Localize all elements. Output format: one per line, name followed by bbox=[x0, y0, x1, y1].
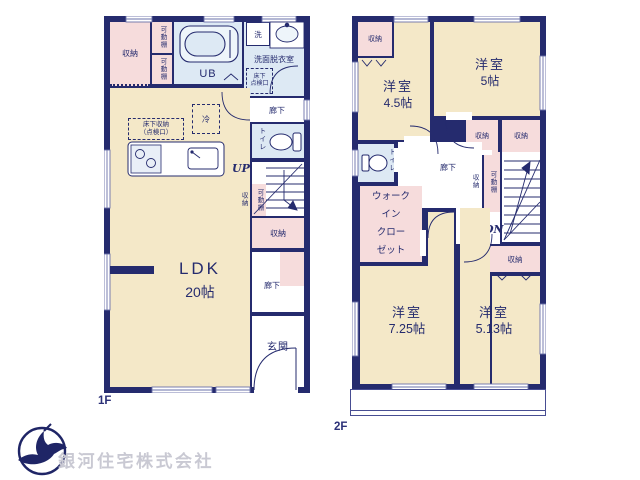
floor-hatch-box: 床下 点検口 bbox=[246, 68, 273, 94]
underfloor-line2: （点検口） bbox=[140, 129, 173, 137]
stairwell-2f bbox=[502, 152, 540, 242]
ldk-label: LDK 20帖 bbox=[150, 260, 250, 300]
toilet-label-1f: トイレ bbox=[258, 127, 266, 151]
room-entrance: 玄関 bbox=[252, 316, 304, 387]
stair-shelf-1f: 可動棚 bbox=[252, 184, 266, 216]
room-45-name: 洋室 bbox=[366, 80, 430, 94]
room-5-size: 5帖 bbox=[458, 75, 522, 88]
room-725-name: 洋室 bbox=[372, 306, 442, 320]
room-5-label: 洋室 5帖 bbox=[458, 58, 522, 88]
room-walk-in-closet: ウォーク イン クロー ゼット bbox=[360, 186, 422, 262]
room-hall-upper-1f: 廊下 bbox=[250, 98, 304, 122]
room-513-label: 洋室 5.13帖 bbox=[462, 306, 526, 337]
room-shelf-bottom-1f: 可動棚 bbox=[152, 55, 172, 84]
wic-line3: クロー bbox=[377, 224, 406, 242]
room-closet-1f: 収納 bbox=[110, 22, 150, 86]
shoe-closet-1f bbox=[280, 252, 304, 286]
room-45-size: 4.5帖 bbox=[366, 97, 430, 110]
under-stair-storage-2f: 収納 bbox=[490, 246, 540, 272]
room-725-entry bbox=[428, 212, 454, 270]
room-washroom: 洗 洗面脱衣室 床下 点検口 bbox=[244, 22, 304, 96]
floor-hatch-line2: 点検口 bbox=[250, 81, 268, 89]
room-5-name: 洋室 bbox=[458, 58, 522, 72]
closet-b-2f: 収納 bbox=[502, 120, 540, 152]
balcony-rail-line bbox=[351, 410, 545, 411]
wic-line4: ゼット bbox=[377, 242, 406, 260]
room-shelf-top-1f: 可動棚 bbox=[152, 22, 172, 53]
closet-nw-2f: 収納 bbox=[358, 22, 394, 58]
room-yoshitsu-513-west bbox=[460, 208, 490, 384]
stairs-up-label: UP bbox=[232, 163, 250, 175]
floor-label-1f: 1F bbox=[98, 395, 111, 407]
company-name: 銀河住宅株式会社 bbox=[58, 447, 214, 472]
underfloor-storage-box: 床下収納 （点検口） bbox=[128, 118, 184, 140]
wic-line2: イン bbox=[381, 206, 400, 224]
floor-label-2f: 2F bbox=[334, 421, 347, 433]
room-513-size: 5.13帖 bbox=[462, 323, 526, 337]
fridge-box: 冷 bbox=[192, 104, 220, 134]
stair-shelf-2f: 可動棚 bbox=[484, 152, 500, 212]
floor-1-plan: 収納 可動棚 可動棚 UB 洗 洗面脱衣室 床下 点検口 廊下 トイレ 可動棚 … bbox=[104, 16, 310, 393]
room-725-label: 洋室 7.25帖 bbox=[372, 306, 442, 337]
hall-lower-label: 廊下 bbox=[250, 282, 294, 291]
toilet-label-2f: トイレ bbox=[388, 148, 396, 172]
balcony bbox=[350, 389, 546, 416]
washing-machine-icon: 洗 bbox=[246, 22, 270, 46]
room-bath-ub: UB bbox=[174, 22, 242, 84]
washroom-label: 洗面脱衣室 bbox=[244, 56, 304, 65]
ldk-name: LDK bbox=[150, 260, 250, 279]
room-45-label: 洋室 4.5帖 bbox=[366, 80, 430, 110]
room-725-size: 7.25帖 bbox=[372, 323, 442, 337]
ldk-size: 20帖 bbox=[150, 285, 250, 300]
hall-label-2f: 廊下 bbox=[440, 164, 456, 173]
wic-line1: ウォーク bbox=[372, 188, 410, 206]
stair-side-storage-label-2f: 収納 bbox=[471, 174, 478, 189]
room-storage-mid-1f: 収納 bbox=[252, 218, 304, 248]
floorplan-canvas: 収納 可動棚 可動棚 UB 洗 洗面脱衣室 床下 点検口 廊下 トイレ 可動棚 … bbox=[0, 0, 640, 480]
floor-2-plan: 収納 収納 収納 トイレ 廊下 ウォーク イン クロー ゼット 可動棚 収納 D… bbox=[352, 16, 546, 390]
stair-side-storage-label-1f: 収納 bbox=[240, 192, 247, 207]
floor-hatch-line1: 床下 bbox=[253, 74, 265, 82]
room-513-name: 洋室 bbox=[462, 306, 526, 320]
underfloor-line1: 床下収納 bbox=[143, 121, 169, 129]
